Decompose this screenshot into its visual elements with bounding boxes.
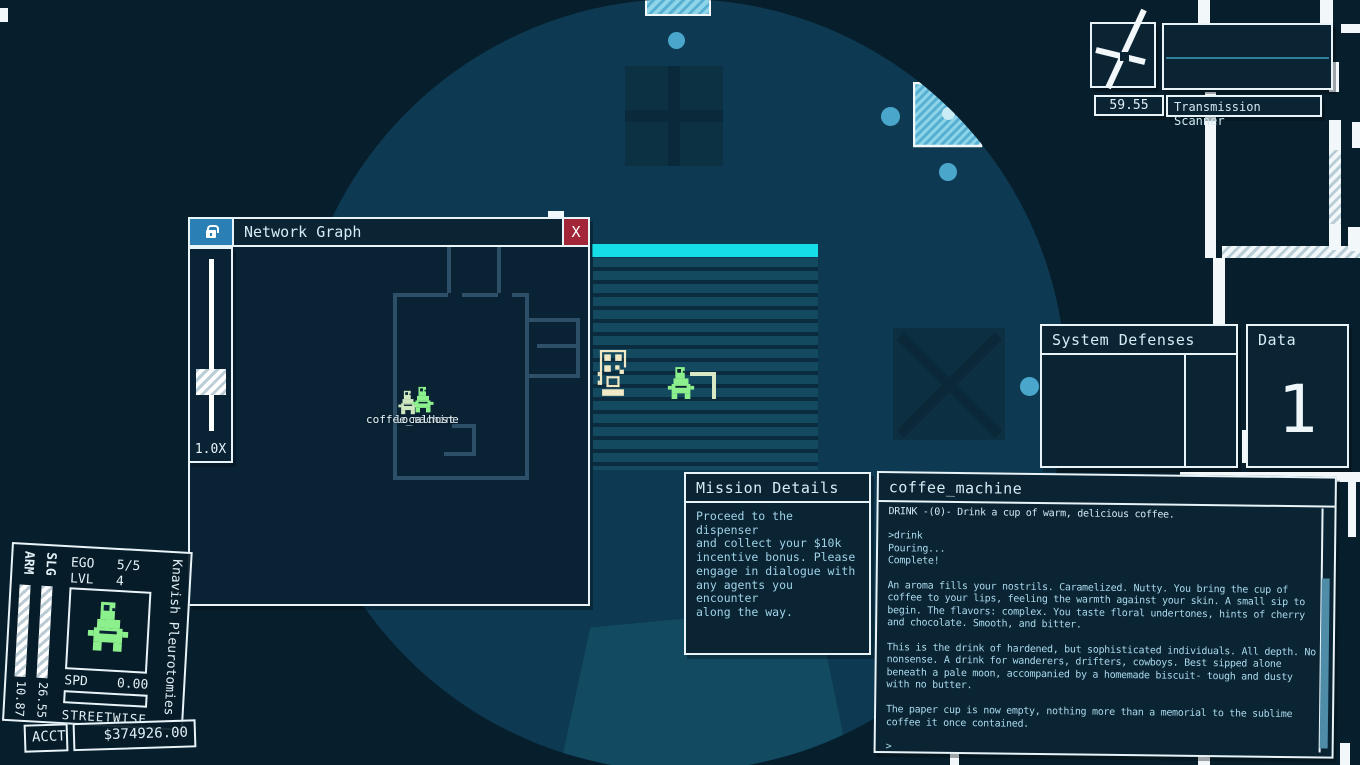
zoom-slider-track[interactable] <box>209 259 214 431</box>
wall <box>1341 24 1360 33</box>
arm-stat-value: 10.87 <box>12 680 28 717</box>
network-graph-title: Network Graph <box>234 219 562 245</box>
wall-door <box>1329 150 1341 224</box>
transmission-scanner-label: Transmission Scanner <box>1166 95 1322 117</box>
wall <box>1329 120 1341 150</box>
wall <box>1348 482 1356 537</box>
clock-icon <box>1088 0 1160 96</box>
lvl-label: LVL <box>70 571 94 587</box>
mission-title: Mission Details <box>686 474 869 501</box>
spd-progress-bar <box>63 690 148 708</box>
clock-readout: 59.55 <box>1094 95 1164 116</box>
acct-balance: $374926.00 <box>73 719 197 751</box>
wall <box>1348 227 1360 251</box>
signal-dot <box>939 163 957 181</box>
data-title: Data <box>1248 326 1347 353</box>
crossed-box-marker <box>893 328 1005 440</box>
signal-dot <box>942 107 955 120</box>
scanner-trace <box>1166 57 1329 59</box>
defenses-column-divider <box>1184 354 1186 466</box>
zoom-level-label: 1.0X <box>190 442 231 457</box>
ego-label: EGO <box>71 555 95 571</box>
slg-stat-bar <box>36 586 52 678</box>
clock-value: 59.55 <box>1109 98 1148 113</box>
signal-dot <box>881 107 900 126</box>
window-pane-square-top <box>625 66 723 166</box>
scanner-title: Transmission Scanner <box>1174 100 1261 128</box>
zoom-slider-panel: 1.0X <box>188 247 233 463</box>
wall <box>0 8 8 22</box>
data-window: Data 1 <box>1246 324 1349 468</box>
mission-body: Proceed to the dispenser and collect you… <box>686 503 869 627</box>
terminal-window[interactable]: coffee_machine DRINK -(0)- Drink a cup o… <box>874 471 1337 759</box>
character-panel: ARM SLG 10.87 26.55 EGO 5/5 LVL 4 SPD 0.… <box>2 542 193 731</box>
lock-button[interactable] <box>190 219 234 245</box>
arm-stat-bar <box>15 584 31 676</box>
mission-details-window: Mission Details Proceed to the dispenser… <box>684 472 871 655</box>
network-graph-map: coffee_machine localhost <box>190 247 588 604</box>
wall <box>1213 258 1225 332</box>
ego-value: 5/5 <box>116 558 140 574</box>
close-button[interactable]: X <box>562 219 588 245</box>
transmission-scanner-window <box>1162 23 1333 90</box>
network-graph-titlebar: Network Graph X <box>190 219 588 247</box>
character-name: Knavish Pleurotomies <box>160 559 184 728</box>
system-defenses-title: System Defenses <box>1042 326 1236 353</box>
signal-dot <box>1020 377 1039 396</box>
slg-stat-label: SLG <box>42 552 58 576</box>
signal-dot <box>668 32 685 49</box>
data-count: 1 <box>1248 352 1347 466</box>
terminal-log[interactable]: >drink Pouring... Complete! An aroma fil… <box>886 531 1321 760</box>
dispenser-sprite[interactable] <box>593 350 633 402</box>
wall <box>1329 224 1341 250</box>
acct-label: ACCT <box>24 723 69 752</box>
system-defenses-window: System Defenses <box>1040 324 1238 468</box>
door-marker-top <box>645 0 711 16</box>
account-bar: ACCT $374926.00 <box>24 719 197 752</box>
wall <box>1340 743 1350 765</box>
avatar-sprite <box>84 600 133 662</box>
node-label-localhost[interactable]: localhost <box>395 413 455 426</box>
arm-stat-label: ARM <box>20 551 36 575</box>
game-screen: 59.55 Transmission Scanner Network Graph… <box>0 0 1360 765</box>
terminal-usage-line: DRINK -(0)- Drink a cup of warm, delicio… <box>888 506 1320 524</box>
wall <box>1352 122 1360 148</box>
network-graph-window: Network Graph X coffee_machine localhos <box>188 217 590 606</box>
highlight-bar <box>592 244 818 257</box>
slg-stat-value: 26.55 <box>34 682 50 719</box>
pipe <box>712 372 716 399</box>
character-portrait <box>65 587 151 673</box>
lvl-value: 4 <box>116 574 125 589</box>
lock-icon <box>206 230 216 238</box>
zoom-slider-handle[interactable] <box>196 369 226 395</box>
